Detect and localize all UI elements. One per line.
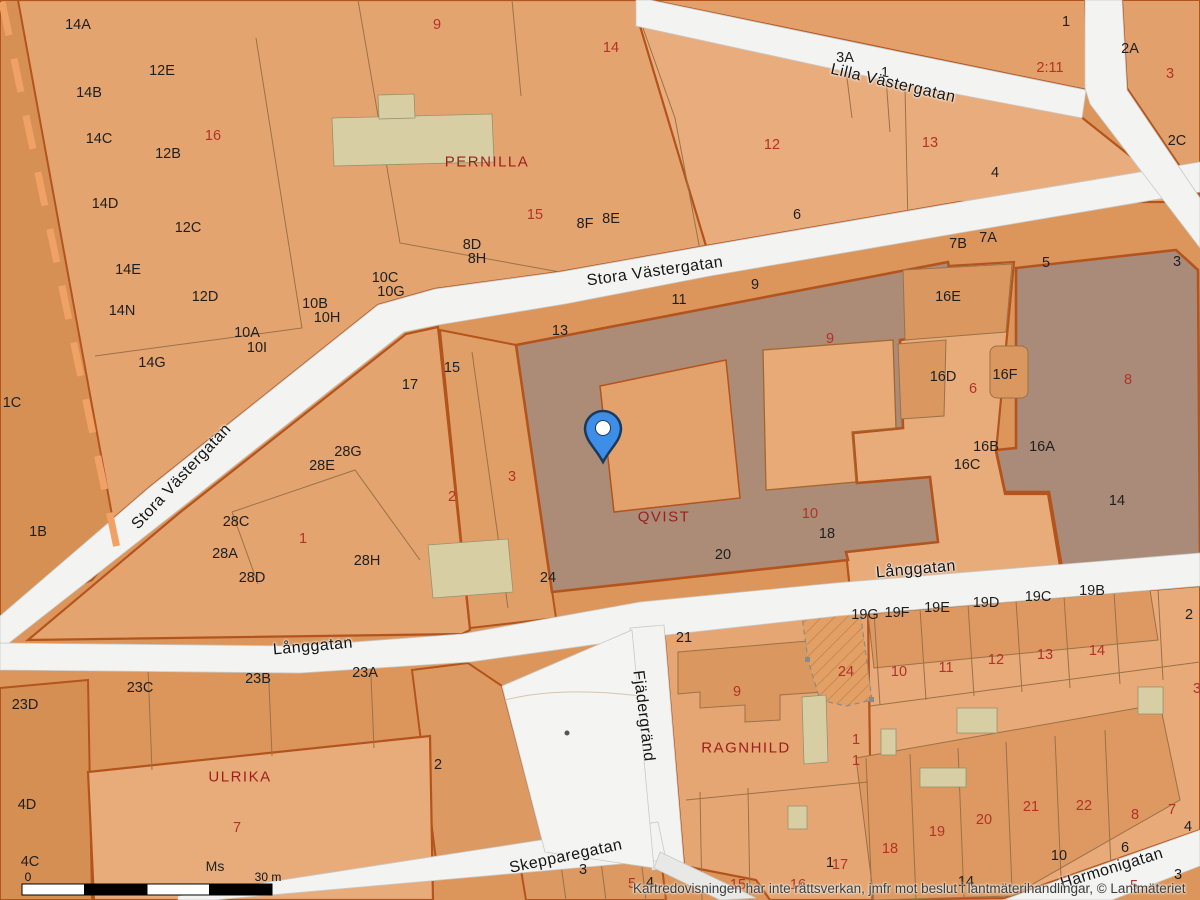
map-pin[interactable] [585, 411, 621, 462]
pin-layer [0, 0, 1200, 900]
map-canvas[interactable]: 14A12E14B14C12B14D12C14E12D14N10C10G10B1… [0, 0, 1200, 900]
map-pin-hole [596, 421, 611, 436]
